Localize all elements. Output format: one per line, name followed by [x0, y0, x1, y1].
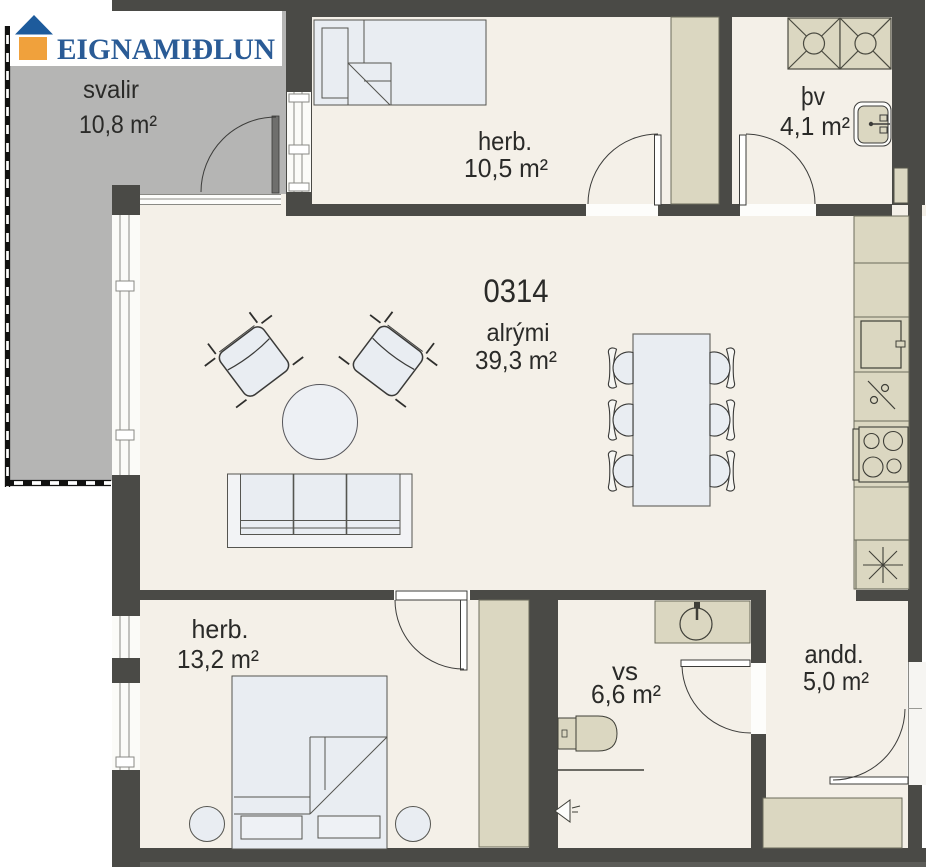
svg-text:6,6 m²: 6,6 m² [591, 679, 661, 709]
svg-text:5,0 m²: 5,0 m² [803, 666, 869, 696]
svg-text:4,1 m²: 4,1 m² [780, 111, 850, 141]
svg-text:svalir: svalir [83, 76, 139, 104]
svg-text:10,8 m²: 10,8 m² [79, 111, 157, 139]
svg-text:39,3 m²: 39,3 m² [475, 345, 557, 375]
svg-text:0314: 0314 [484, 273, 549, 309]
svg-text:andd.: andd. [805, 639, 864, 669]
svg-text:EIGNAMIĐLUN: EIGNAMIĐLUN [57, 33, 275, 66]
svg-text:herb.: herb. [192, 614, 249, 644]
svg-text:herb.: herb. [478, 126, 532, 156]
svg-text:10,5 m²: 10,5 m² [464, 153, 548, 183]
svg-text:13,2 m²: 13,2 m² [177, 644, 259, 674]
svg-text:þv: þv [801, 81, 825, 111]
svg-text:alrými: alrými [487, 319, 550, 347]
